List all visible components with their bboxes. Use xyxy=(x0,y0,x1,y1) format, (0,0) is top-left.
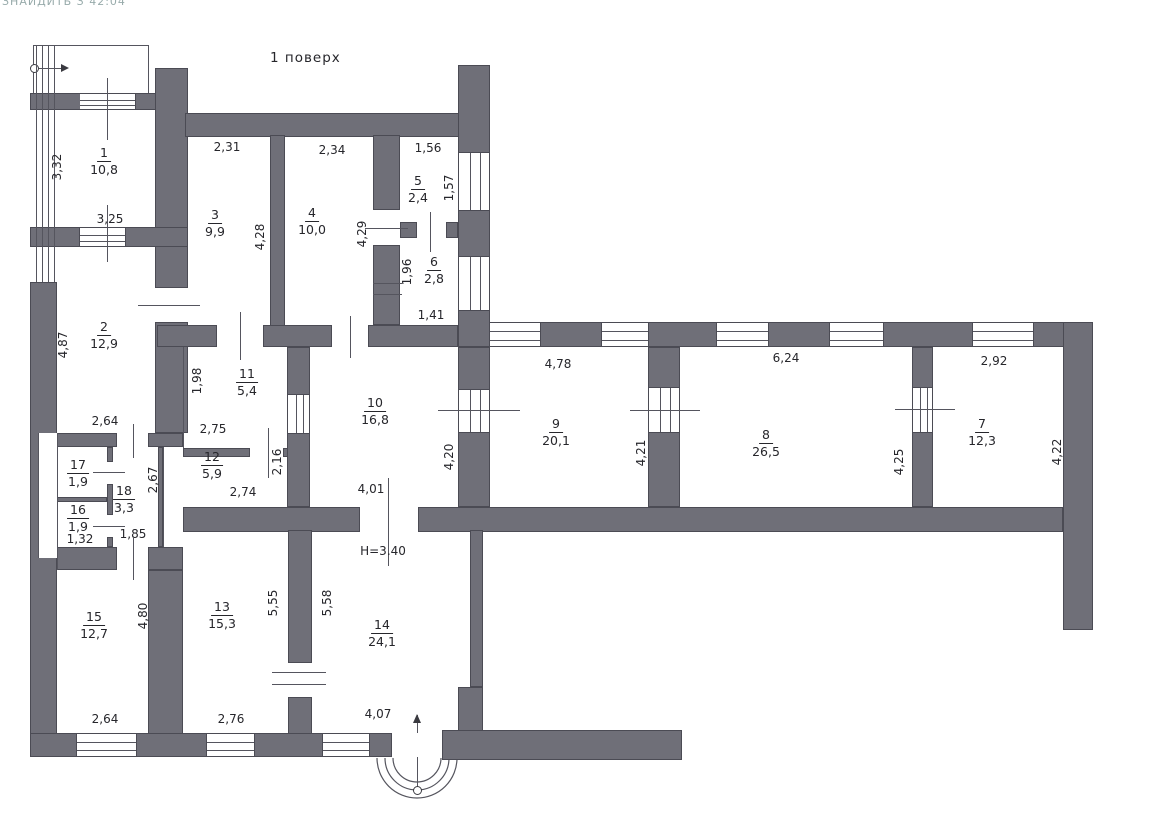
room-number: 4 xyxy=(305,206,319,222)
wall xyxy=(157,325,217,347)
floor-title: 1 поверх xyxy=(270,50,341,66)
dimension-label: 4,22 xyxy=(1050,439,1064,466)
room-number: 17 xyxy=(67,458,89,474)
window-glazing-line xyxy=(480,390,481,432)
wall xyxy=(912,347,933,388)
wall xyxy=(458,347,490,390)
drawing-line xyxy=(138,305,200,306)
door-opening xyxy=(288,663,312,697)
room-number: 2 xyxy=(97,320,111,336)
window-glazing-line xyxy=(717,331,768,332)
window-glazing-line xyxy=(920,388,921,432)
room-label-16: 161,9 xyxy=(67,503,89,534)
dimension-label: 5,58 xyxy=(320,590,334,617)
room-label-17: 171,9 xyxy=(67,458,89,489)
wall xyxy=(369,733,392,757)
drawing-line xyxy=(183,347,184,448)
wall xyxy=(373,135,400,210)
room-label-7: 712,3 xyxy=(968,417,996,448)
window-glazing-line xyxy=(80,235,125,236)
window-glazing-line xyxy=(323,750,369,751)
room-number: 15 xyxy=(83,610,105,626)
window-glazing-line xyxy=(490,340,540,341)
room-label-10: 1016,8 xyxy=(361,396,389,427)
window-glazing-line xyxy=(207,742,254,743)
entrance-arrow-icon xyxy=(413,714,421,723)
wall xyxy=(418,507,1063,532)
clipped-artifact-text: ЗНАЙДИТЬ З 42:04 xyxy=(2,0,126,8)
window xyxy=(458,257,490,310)
stair-landing-outline xyxy=(33,45,149,95)
wall xyxy=(458,432,490,507)
drawing-line xyxy=(438,410,520,411)
dimension-label: H=3.40 xyxy=(360,544,406,558)
room-number: 11 xyxy=(236,367,258,383)
dimension-label: 4,21 xyxy=(634,440,648,467)
wall xyxy=(148,547,183,570)
room-label-3: 39,9 xyxy=(205,208,225,239)
wall xyxy=(254,733,323,757)
wall xyxy=(183,507,360,532)
drawing-line xyxy=(38,433,39,558)
window xyxy=(80,227,125,247)
dimension-label: 2,16 xyxy=(270,449,284,476)
wall xyxy=(446,222,458,238)
window xyxy=(287,395,310,433)
room-number: 3 xyxy=(208,208,222,224)
room-number: 14 xyxy=(371,618,393,634)
wall xyxy=(648,322,717,347)
window-glazing-line xyxy=(927,388,928,432)
dimension-label: 4,01 xyxy=(358,482,385,496)
wall xyxy=(287,347,310,395)
drawing-line xyxy=(350,316,351,358)
room-number: 16 xyxy=(67,503,89,519)
drawing-line xyxy=(430,212,431,252)
wall xyxy=(57,547,117,570)
room-area: 24,1 xyxy=(368,634,396,649)
wall xyxy=(107,537,113,547)
dimension-label: 2,75 xyxy=(200,422,227,436)
drawing-line xyxy=(373,294,402,295)
dimension-label: 4,80 xyxy=(136,603,150,630)
dimension-label: 6,24 xyxy=(773,351,800,365)
dimension-label: 3,32 xyxy=(50,154,64,181)
window-glazing-line xyxy=(830,331,883,332)
room-area: 5,4 xyxy=(236,383,258,398)
window xyxy=(207,733,254,757)
room-area: 12,7 xyxy=(80,626,108,641)
wall xyxy=(458,65,490,153)
room-label-9: 920,1 xyxy=(542,417,570,448)
wall xyxy=(185,113,460,137)
wall xyxy=(287,433,310,507)
drawing-line xyxy=(895,409,955,410)
wall xyxy=(30,227,80,247)
room-area: 1,9 xyxy=(67,474,89,489)
window-glazing-line xyxy=(973,331,1033,332)
drawing-line xyxy=(93,472,125,473)
room-area: 2,4 xyxy=(408,190,428,205)
drawing-line xyxy=(240,312,241,360)
dimension-label: 1,41 xyxy=(418,308,445,322)
dimension-label: 5,55 xyxy=(266,590,280,617)
dimension-label: 4,78 xyxy=(545,357,572,371)
window-glazing-line xyxy=(717,340,768,341)
dimension-label: 2,31 xyxy=(214,140,241,154)
dimension-label: 2,64 xyxy=(92,712,119,726)
window-glazing-line xyxy=(303,395,304,433)
door-opening xyxy=(107,462,113,484)
wall xyxy=(135,93,157,110)
dimension-label: 1,57 xyxy=(442,175,456,202)
window-glazing-line xyxy=(77,742,136,743)
drawing-line xyxy=(373,283,402,284)
room-number: 13 xyxy=(211,600,233,616)
room-area: 12,9 xyxy=(90,336,118,351)
drawing-line xyxy=(57,433,58,570)
floor-plan: ЗНАЙДИТЬ З 42:04 1 поверх 110,8212,939,9… xyxy=(0,0,1150,820)
window-glazing-line xyxy=(490,331,540,332)
wall xyxy=(270,135,285,327)
window-glazing-line xyxy=(296,395,297,433)
dimension-label: 1,56 xyxy=(415,141,442,155)
window-glazing-line xyxy=(480,153,481,210)
room-label-12: 125,9 xyxy=(201,450,223,481)
room-area: 3,3 xyxy=(113,500,135,515)
dimension-label: 2,76 xyxy=(218,712,245,726)
wall xyxy=(373,245,400,325)
drawing-line xyxy=(365,228,408,229)
wall xyxy=(458,310,490,347)
dimension-label: 4,25 xyxy=(892,449,906,476)
room-area: 10,0 xyxy=(298,222,326,237)
window-glazing-line xyxy=(323,742,369,743)
room-label-6: 62,8 xyxy=(424,255,444,286)
wall xyxy=(648,432,680,507)
dimension-label: 4,29 xyxy=(355,221,369,248)
room-number: 9 xyxy=(549,417,563,433)
window xyxy=(323,733,369,757)
wall xyxy=(540,322,602,347)
wall xyxy=(136,733,207,757)
room-label-14: 1424,1 xyxy=(368,618,396,649)
room-label-4: 410,0 xyxy=(298,206,326,237)
drawing-line xyxy=(36,45,37,282)
stair-start-circle xyxy=(30,64,39,73)
wall xyxy=(912,432,933,507)
wall xyxy=(288,530,312,663)
room-area: 15,3 xyxy=(208,616,236,631)
window-glazing-line xyxy=(80,241,125,242)
window-glazing-line xyxy=(470,390,471,432)
room-label-15: 1512,7 xyxy=(80,610,108,641)
window-glazing-line xyxy=(830,340,883,341)
window xyxy=(490,322,540,347)
dimension-label: 2,74 xyxy=(230,485,257,499)
window-glazing-line xyxy=(77,750,136,751)
window xyxy=(717,322,768,347)
door-opening xyxy=(38,433,57,558)
room-number: 10 xyxy=(364,396,386,412)
wall xyxy=(1033,322,1065,347)
window xyxy=(830,322,883,347)
window xyxy=(602,322,648,347)
room-area: 20,1 xyxy=(542,433,570,448)
drawing-line xyxy=(107,78,108,140)
dimension-label: 1,98 xyxy=(190,368,204,395)
window-glazing-line xyxy=(973,340,1033,341)
room-label-11: 115,4 xyxy=(236,367,258,398)
dimension-label: 2,34 xyxy=(319,143,346,157)
door-opening xyxy=(392,733,442,757)
room-label-5: 52,4 xyxy=(408,174,428,205)
dimension-label: 1,85 xyxy=(120,527,147,541)
window-glazing-line xyxy=(470,153,471,210)
room-number: 12 xyxy=(201,450,223,466)
wall xyxy=(263,325,332,347)
wall xyxy=(57,433,117,447)
room-number: 5 xyxy=(411,174,425,190)
room-number: 7 xyxy=(975,417,989,433)
window-glazing-line xyxy=(602,340,648,341)
drawing-line xyxy=(272,684,326,685)
drawing-line xyxy=(272,672,326,673)
window xyxy=(912,388,933,432)
stair-direction-arrow-icon xyxy=(61,64,69,72)
wall xyxy=(30,733,77,757)
drawing-line xyxy=(133,538,134,580)
wall xyxy=(155,68,188,288)
room-label-2: 212,9 xyxy=(90,320,118,351)
door-opening xyxy=(417,222,446,238)
window xyxy=(458,153,490,210)
wall xyxy=(288,697,312,735)
drawing-line xyxy=(268,428,269,478)
wall xyxy=(1063,322,1093,630)
wall xyxy=(768,322,830,347)
room-number: 8 xyxy=(759,428,773,444)
wall xyxy=(107,447,113,462)
window xyxy=(77,733,136,757)
room-area: 10,8 xyxy=(90,162,118,177)
room-area: 2,8 xyxy=(424,271,444,286)
dimension-label: 2,64 xyxy=(92,414,119,428)
door-opening xyxy=(360,507,418,532)
drawing-line xyxy=(163,447,164,547)
wall xyxy=(125,227,188,247)
room-area: 5,9 xyxy=(201,466,223,481)
wall xyxy=(400,222,417,238)
dimension-label: 3,25 xyxy=(97,212,124,226)
wall xyxy=(470,530,483,687)
dimension-label: 4,87 xyxy=(56,332,70,359)
window xyxy=(458,390,490,432)
window-glazing-line xyxy=(470,257,471,310)
window xyxy=(973,322,1033,347)
window-glazing-line xyxy=(207,750,254,751)
window-glazing-line xyxy=(602,331,648,332)
room-area: 16,8 xyxy=(361,412,389,427)
entrance-point-circle xyxy=(413,786,422,795)
room-area: 26,5 xyxy=(752,444,780,459)
room-number: 1 xyxy=(97,146,111,162)
drawing-line xyxy=(48,45,49,282)
wall xyxy=(368,325,458,347)
dimension-label: 4,07 xyxy=(365,707,392,721)
wall xyxy=(442,730,682,760)
wall xyxy=(458,687,483,732)
wall xyxy=(148,570,183,735)
wall xyxy=(648,347,680,388)
room-label-18: 183,3 xyxy=(113,484,135,515)
room-label-13: 1315,3 xyxy=(208,600,236,631)
drawing-line xyxy=(630,410,700,411)
wall xyxy=(148,433,183,447)
room-area: 9,9 xyxy=(205,224,225,239)
dimension-label: 4,28 xyxy=(253,224,267,251)
room-label-1: 110,8 xyxy=(90,146,118,177)
dimension-label: 2,67 xyxy=(146,467,160,494)
dimension-label: 1,96 xyxy=(400,259,414,286)
wall xyxy=(883,322,973,347)
drawing-line xyxy=(133,424,134,458)
room-area: 12,3 xyxy=(968,433,996,448)
dimension-label: 2,92 xyxy=(981,354,1008,368)
room-number: 18 xyxy=(113,484,135,500)
dimension-label: 4,20 xyxy=(442,444,456,471)
dimension-label: 1,32 xyxy=(67,532,94,546)
drawing-line xyxy=(42,45,43,282)
room-label-8: 826,5 xyxy=(752,428,780,459)
window-glazing-line xyxy=(480,257,481,310)
room-number: 6 xyxy=(427,255,441,271)
wall xyxy=(458,210,490,257)
